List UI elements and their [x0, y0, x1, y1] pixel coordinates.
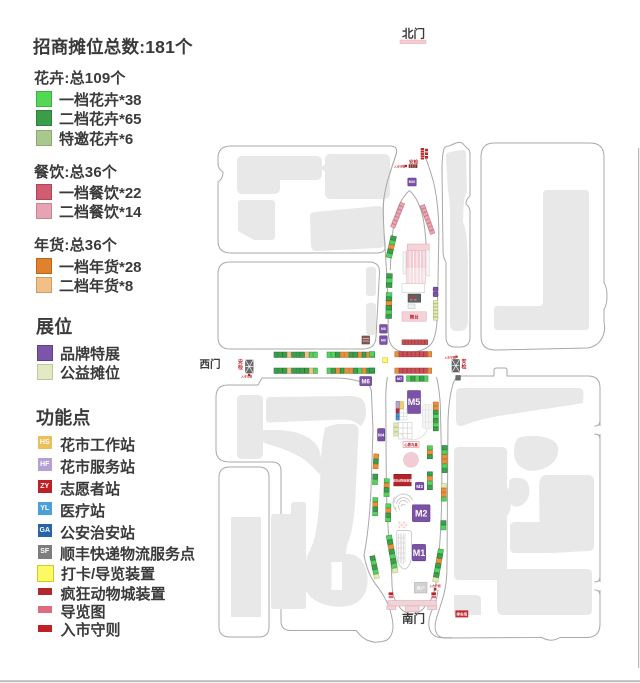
svg-text:舞台: 舞台 — [410, 313, 419, 320]
svg-text:停车场: 停车场 — [456, 612, 467, 617]
svg-text:疯狂动物城装置: 疯狂动物城装置 — [392, 478, 413, 482]
svg-text:西门: 西门 — [200, 358, 221, 371]
svg-text:入市守则: 入市守则 — [429, 584, 441, 588]
svg-text:M2: M2 — [415, 508, 428, 518]
svg-text:入市守则: 入市守则 — [240, 375, 252, 379]
svg-text:M9: M9 — [381, 338, 386, 342]
svg-text:入市守则: 入市守则 — [393, 164, 405, 168]
svg-text:心愿鸟巢: 心愿鸟巢 — [404, 442, 418, 447]
svg-text:M5: M5 — [408, 397, 421, 407]
svg-text:入市守则: 入市守则 — [444, 355, 456, 359]
svg-text:北门: 北门 — [402, 27, 425, 41]
svg-text:M6: M6 — [362, 379, 371, 385]
svg-text:M4: M4 — [378, 433, 385, 438]
svg-text:M1: M1 — [413, 548, 426, 558]
svg-text:M8: M8 — [381, 327, 386, 331]
svg-text:M3: M3 — [416, 484, 423, 490]
svg-text:南门: 南门 — [402, 612, 425, 626]
svg-text:安检: 安检 — [462, 358, 467, 371]
svg-text:M7: M7 — [397, 377, 402, 381]
svg-text:安检: 安检 — [238, 359, 243, 372]
svg-text:M10: M10 — [409, 180, 416, 184]
svg-text:商户: 商户 — [417, 584, 425, 591]
